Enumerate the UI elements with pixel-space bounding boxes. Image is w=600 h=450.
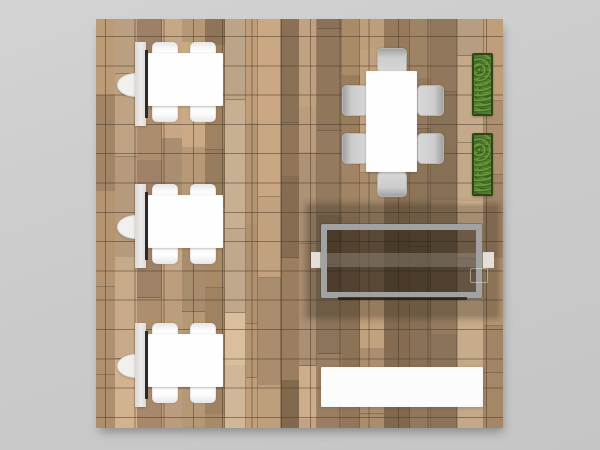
conference-table <box>366 71 417 172</box>
chair <box>190 386 216 403</box>
chair <box>152 386 178 403</box>
conference-chair <box>342 133 369 164</box>
planter-hedge <box>472 53 493 116</box>
meeting-table <box>148 53 223 106</box>
divider-panel <box>135 323 146 407</box>
divider-panel <box>135 184 146 268</box>
canopy-frame <box>321 224 482 298</box>
booth-floorplan-render <box>0 0 600 450</box>
conference-chair <box>377 171 407 197</box>
meeting-table <box>148 195 223 248</box>
chair <box>190 105 216 122</box>
frame-shadow-line <box>338 297 467 300</box>
chair <box>190 247 216 264</box>
conference-chair <box>342 85 369 116</box>
storage-counter <box>321 367 483 407</box>
frame-bracket <box>470 268 488 283</box>
conference-chair <box>417 85 444 116</box>
divider-panel <box>135 42 146 126</box>
chair <box>152 247 178 264</box>
meeting-table <box>148 334 223 387</box>
chair <box>152 105 178 122</box>
planter-hedge <box>472 133 493 196</box>
conference-chair <box>417 133 444 164</box>
counter-end <box>483 252 494 268</box>
